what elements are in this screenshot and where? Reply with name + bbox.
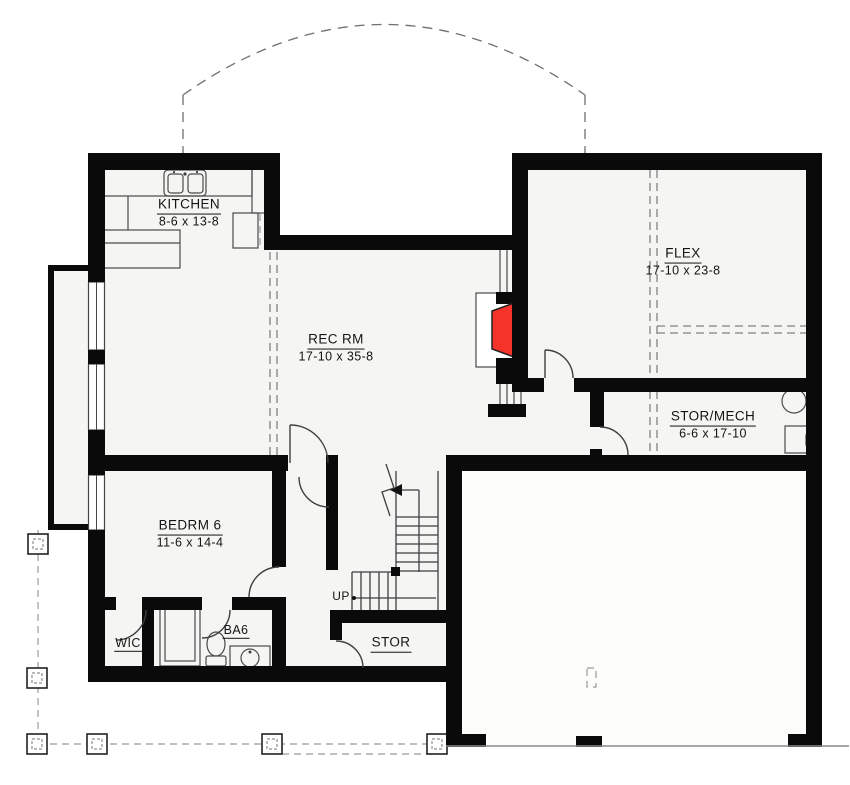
floor-plan-drawing — [0, 0, 850, 785]
window — [89, 282, 105, 350]
deck-post — [262, 734, 282, 754]
window — [89, 364, 105, 430]
floor-plan: KITCHEN 8-6 x 13-8 REC RM 17-10 x 35-8 F… — [0, 0, 850, 785]
room-label-wic: WIC — [114, 634, 142, 652]
deck-post — [28, 534, 48, 554]
deck-post — [87, 734, 107, 754]
stairs-up-label: UP — [332, 589, 349, 603]
deck-post — [427, 734, 447, 754]
room-label-kitchen: KITCHEN 8-6 x 13-8 — [157, 196, 221, 229]
room-label-stor: STOR — [371, 634, 412, 653]
deck-post — [27, 668, 47, 688]
deck-post — [27, 734, 47, 754]
firebox — [492, 303, 514, 357]
windows — [89, 282, 105, 530]
room-label-rec-rm: REC RM 17-10 x 35-8 — [299, 331, 374, 364]
roof-arc — [183, 25, 585, 154]
window — [89, 475, 105, 530]
room-label-ba6: BA6 — [223, 621, 250, 639]
room-label-flex: FLEX 17-10 x 23-8 — [646, 245, 721, 278]
room-label-bedrm6: BEDRM 6 11-6 x 14-4 — [157, 517, 224, 550]
room-label-stor-mech: STOR/MECH 6-6 x 17-10 — [670, 408, 756, 441]
